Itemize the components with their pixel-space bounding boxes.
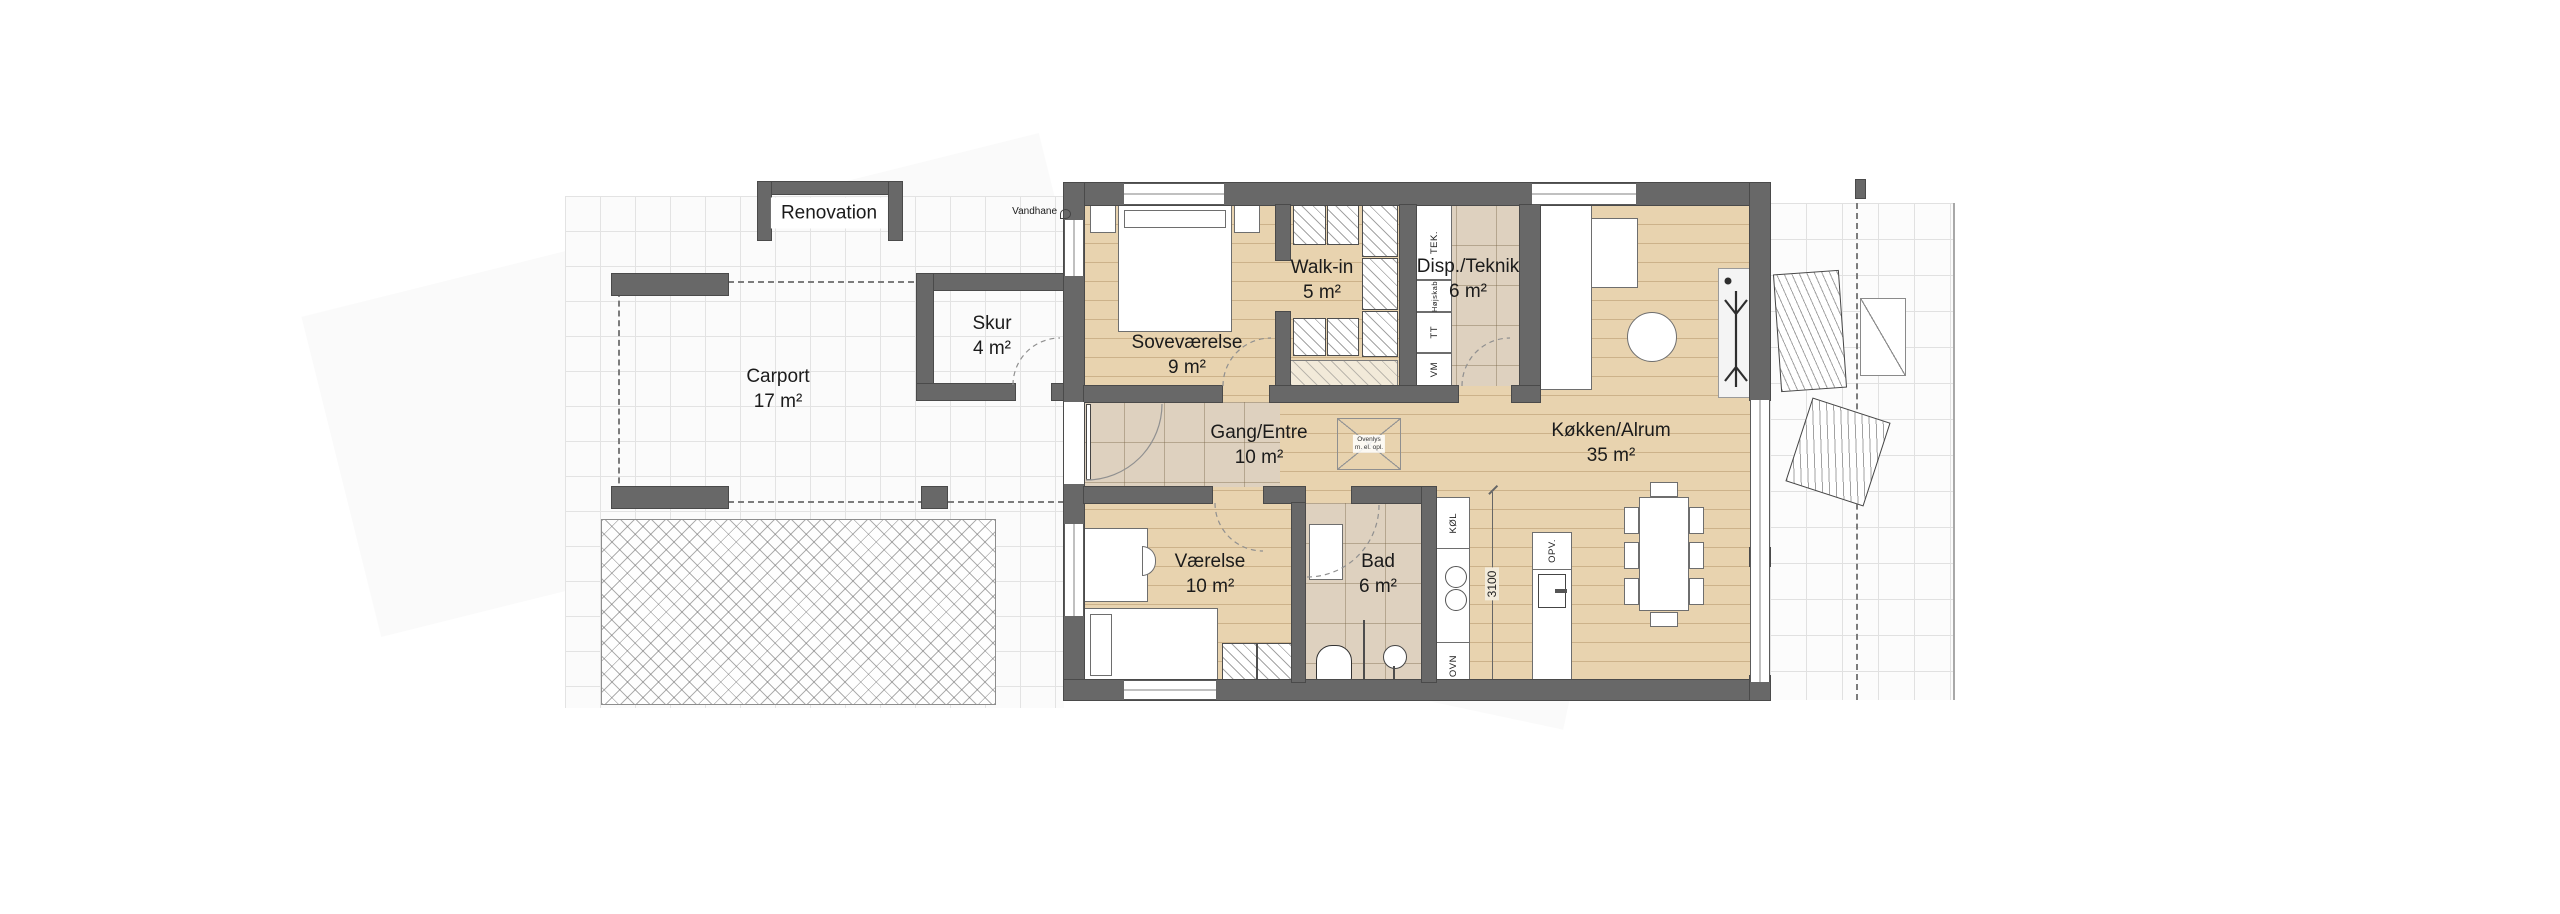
room-area: 17 m² <box>746 389 809 414</box>
window <box>1124 680 1216 700</box>
wall <box>922 274 1078 290</box>
wall <box>1856 180 1865 198</box>
wall <box>1520 205 1540 402</box>
wall <box>1270 386 1458 402</box>
dryer: TT <box>1416 312 1452 353</box>
dining-chair <box>1624 578 1639 605</box>
room-area: 10 m² <box>1175 574 1246 599</box>
door-swing-arc <box>1086 404 1162 480</box>
dishwasher: OPV. <box>1532 532 1572 570</box>
room-name: Værelse <box>1175 549 1246 574</box>
coat-rack-base <box>1718 268 1752 398</box>
wall <box>1084 386 1222 402</box>
floor-plan-drawing: Renovation Carport 17 m² Skur 4 m² Vandh… <box>0 0 2560 914</box>
bed-pillow <box>1090 614 1112 676</box>
wardrobe-unit <box>1293 318 1326 356</box>
wall <box>1276 205 1290 260</box>
wardrobe-unit <box>1327 318 1359 356</box>
room-name: Bad <box>1359 549 1397 574</box>
dimension-label: 3100 <box>1485 568 1499 601</box>
wardrobe-unit <box>1362 311 1398 357</box>
appliance-label: OPV. <box>1547 539 1558 563</box>
door-swing-arc <box>1215 503 1263 551</box>
dining-chair <box>1689 578 1704 605</box>
dining-chair <box>1689 507 1704 534</box>
room-area: 5 m² <box>1291 280 1354 305</box>
skylight-note: Ovenlys m. el. opl. <box>1353 435 1385 453</box>
room-area: 4 m² <box>972 336 1011 361</box>
skylight-note-line2: m. el. opl. <box>1355 444 1383 452</box>
wall <box>612 274 728 295</box>
washing-machine: VM <box>1416 353 1452 386</box>
wardrobe-unit <box>1293 205 1326 245</box>
skylight: Ovenlys m. el. opl. <box>1337 418 1401 470</box>
sink-bowl <box>1445 589 1467 611</box>
entrance-door-opening <box>1064 402 1084 484</box>
room-area: 9 m² <box>1132 355 1243 380</box>
room-name: Skur <box>972 311 1011 336</box>
coat-rack-icon <box>1719 269 1753 399</box>
dining-chair <box>1689 542 1704 569</box>
wall <box>1292 503 1305 682</box>
room-label-bad: Bad 6 m² <box>1359 549 1397 599</box>
toilet <box>1316 645 1352 682</box>
wall <box>1512 386 1540 402</box>
window <box>1532 183 1636 205</box>
shower-drain <box>1383 645 1407 669</box>
gravel-crosshatch-area <box>601 519 996 705</box>
room-label-disp: Disp./Teknik 6 m² <box>1417 254 1519 304</box>
window <box>1064 220 1084 276</box>
wall <box>1084 487 1212 503</box>
dining-table <box>1639 497 1689 611</box>
room-name: Gang/Entre <box>1210 420 1307 445</box>
wardrobe-unit <box>1222 643 1257 682</box>
wall <box>1264 487 1305 503</box>
outdoor-bench <box>1773 270 1847 392</box>
vandhane-label: Vandhane <box>985 206 1057 217</box>
room-label-renovation: Renovation <box>771 197 887 228</box>
room-label-gang: Gang/Entre 10 m² <box>1210 420 1307 470</box>
room-label-skur: Skur 4 m² <box>972 311 1011 361</box>
skylight-note-line1: Ovenlys <box>1355 436 1383 444</box>
nightstand <box>1090 205 1116 233</box>
wall <box>917 384 1015 400</box>
island-door-handle <box>1555 589 1567 593</box>
room-name: Køkken/Alrum <box>1551 418 1670 443</box>
room-label-walkin: Walk-in 5 m² <box>1291 255 1354 305</box>
nightstand <box>1234 205 1260 233</box>
door-swing-arc <box>1013 338 1060 385</box>
carport-boundary <box>618 281 620 503</box>
desk <box>1084 528 1148 602</box>
wall <box>1422 487 1436 682</box>
sliding-door-track <box>1290 360 1398 386</box>
wall <box>1400 205 1416 386</box>
wardrobe-unit <box>1362 205 1398 257</box>
sofa-section <box>1591 218 1638 288</box>
room-label-vaerelse: Værelse 10 m² <box>1175 549 1246 599</box>
wardrobe-unit <box>1327 205 1359 245</box>
room-label-koekken: Køkken/Alrum 35 m² <box>1551 418 1670 468</box>
door-swing-arc <box>1462 338 1510 386</box>
room-label-sovevaerelse: Soveværelse 9 m² <box>1132 330 1243 380</box>
terrace-edge <box>1953 203 1955 700</box>
dining-chair <box>1624 507 1639 534</box>
fridge: KØL <box>1436 497 1470 549</box>
coffee-table <box>1627 312 1677 362</box>
wall <box>758 182 771 240</box>
room-name: Walk-in <box>1291 255 1354 280</box>
shower-partition <box>1363 620 1365 682</box>
water-tap-icon <box>1060 209 1071 219</box>
appliance-label: OVN <box>1448 655 1459 677</box>
wall <box>922 487 947 508</box>
room-name: Renovation <box>781 200 877 225</box>
sink-bowl <box>1445 566 1467 588</box>
outdoor-ramp <box>1860 298 1906 376</box>
wall <box>889 182 902 240</box>
room-name: Soveværelse <box>1132 330 1243 355</box>
cabinet-label: TEK. <box>1429 231 1440 254</box>
appliance-label: KØL <box>1448 513 1459 534</box>
room-label-carport: Carport 17 m² <box>746 364 809 414</box>
wardrobe-unit <box>1257 643 1292 682</box>
room-name: Carport <box>746 364 809 389</box>
room-area: 10 m² <box>1210 445 1307 470</box>
cabinet-label: TT <box>1429 326 1440 339</box>
room-area: 6 m² <box>1359 574 1397 599</box>
wall-east <box>1750 183 1770 400</box>
dining-chair <box>1650 482 1678 497</box>
cabinet-label: VM <box>1429 362 1440 377</box>
wall <box>758 182 902 194</box>
room-area: 6 m² <box>1417 279 1519 304</box>
room-name: Disp./Teknik <box>1417 254 1519 279</box>
wall <box>917 274 933 400</box>
wardrobe-unit <box>1362 258 1398 310</box>
wall <box>612 487 728 508</box>
bed-pillows <box>1124 210 1226 228</box>
dining-chair <box>1624 542 1639 569</box>
wall <box>1276 312 1290 386</box>
glass-facade-east <box>1750 400 1770 682</box>
room-area: 35 m² <box>1551 443 1670 468</box>
dining-chair <box>1650 612 1678 627</box>
window <box>1064 524 1084 616</box>
window <box>1124 183 1224 205</box>
